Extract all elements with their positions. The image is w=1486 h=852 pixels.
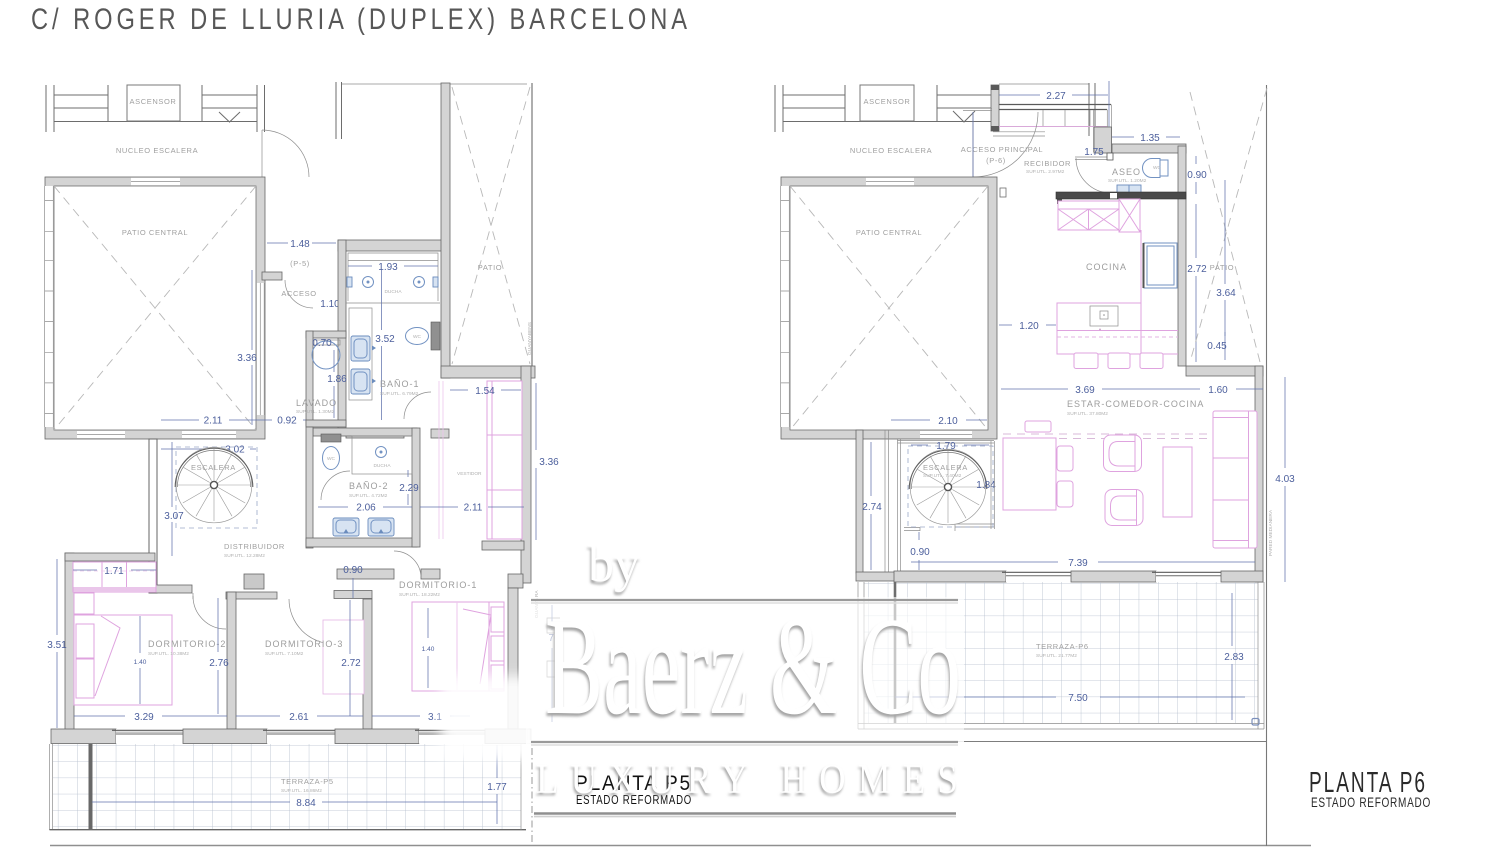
svg-text:ESTADO REFORMADO: ESTADO REFORMADO — [1311, 794, 1431, 810]
svg-text:3.69: 3.69 — [1075, 385, 1095, 396]
svg-text:PARED MEDIANERA: PARED MEDIANERA — [1268, 509, 1274, 556]
svg-text:SUP.UTL. 4.72M2: SUP.UTL. 4.72M2 — [349, 493, 388, 499]
svg-text:1.20: 1.20 — [1019, 321, 1039, 332]
svg-text:by: by — [588, 536, 640, 593]
svg-text:2.61: 2.61 — [289, 712, 309, 723]
svg-text:1.40: 1.40 — [134, 659, 147, 666]
svg-text:1.10: 1.10 — [320, 299, 340, 310]
svg-text:1.75: 1.75 — [1084, 147, 1104, 158]
svg-text:2.06: 2.06 — [356, 503, 376, 514]
svg-text:SUP.UTL. 16.86M2: SUP.UTL. 16.86M2 — [281, 788, 322, 794]
svg-text:Baerz & Co: Baerz & Co — [545, 589, 961, 744]
svg-text:ASCENSOR: ASCENSOR — [130, 97, 177, 106]
svg-text:PATIO: PATIO — [478, 263, 502, 272]
svg-text:2.83: 2.83 — [1224, 652, 1244, 663]
svg-text:0.45: 0.45 — [1207, 341, 1227, 352]
svg-text:SUP.UTL. 18.22M2: SUP.UTL. 18.22M2 — [399, 592, 440, 598]
svg-text:PATIO CENTRAL: PATIO CENTRAL — [122, 228, 188, 237]
svg-text:(P-5): (P-5) — [290, 259, 310, 268]
svg-text:C/ ROGER DE LLURIA (DUPLEX) B: C/ ROGER DE LLURIA (DUPLEX) BARCELONA — [31, 3, 691, 36]
svg-text:1.60: 1.60 — [1208, 385, 1228, 396]
svg-text:WC: WC — [327, 456, 336, 462]
svg-text:SUP.UTL. 7.40M2: SUP.UTL. 7.40M2 — [923, 473, 962, 479]
svg-text:LUXURY HOMES: LUXURY HOMES — [536, 757, 970, 803]
svg-text:SUP.UTL. 7.10M2: SUP.UTL. 7.10M2 — [265, 651, 304, 657]
svg-text:3.36: 3.36 — [539, 457, 559, 468]
svg-text:ASEO: ASEO — [1112, 167, 1141, 177]
svg-text:ESCALERA: ESCALERA — [191, 463, 236, 472]
svg-text:1.77: 1.77 — [487, 782, 507, 793]
svg-text:2.76: 2.76 — [209, 658, 229, 669]
svg-text:ESTAR-COMEDOR-COCINA: ESTAR-COMEDOR-COCINA — [1067, 399, 1204, 409]
svg-text:1.84: 1.84 — [976, 480, 996, 491]
svg-text:2.27: 2.27 — [1046, 91, 1066, 102]
svg-text:8.84: 8.84 — [296, 798, 316, 809]
svg-text:1.35: 1.35 — [1140, 133, 1160, 144]
svg-text:DUCHA: DUCHA — [373, 463, 391, 469]
svg-text:2.72: 2.72 — [1187, 264, 1207, 275]
svg-text:0.90: 0.90 — [343, 565, 363, 576]
svg-text:SUP.UTL. 37.80M2: SUP.UTL. 37.80M2 — [1067, 411, 1108, 417]
svg-text:4.03: 4.03 — [1275, 474, 1295, 485]
svg-text:GUANYABENS: GUANYABENS — [527, 322, 533, 355]
svg-text:LAVADO: LAVADO — [296, 398, 337, 408]
svg-text:1.71: 1.71 — [104, 566, 124, 577]
svg-text:WC: WC — [413, 334, 422, 340]
svg-text:2.29: 2.29 — [399, 483, 419, 494]
svg-text:3.51: 3.51 — [47, 640, 67, 651]
svg-text:BAÑO-1: BAÑO-1 — [380, 379, 420, 389]
svg-text:BAÑO-2: BAÑO-2 — [349, 481, 389, 491]
svg-text:DORMITORIO-2: DORMITORIO-2 — [148, 639, 226, 649]
svg-text:SUP.UTL. 12.28M2: SUP.UTL. 12.28M2 — [224, 553, 265, 559]
svg-text:1.48: 1.48 — [290, 239, 310, 250]
svg-text:2.11: 2.11 — [464, 503, 483, 514]
svg-text:SUP.UTL. 1.30M2: SUP.UTL. 1.30M2 — [296, 409, 335, 415]
svg-text:0.90: 0.90 — [1187, 170, 1207, 181]
svg-text:(P-6): (P-6) — [986, 156, 1006, 165]
svg-text:0.90: 0.90 — [910, 547, 930, 558]
svg-text:DORMITORIO-3: DORMITORIO-3 — [265, 639, 343, 649]
svg-text:3.64: 3.64 — [1216, 288, 1236, 299]
svg-text:SUP.UTL. 2.97M2: SUP.UTL. 2.97M2 — [1026, 169, 1065, 175]
svg-text:7.50: 7.50 — [1068, 693, 1088, 704]
svg-text:3.52: 3.52 — [375, 334, 395, 345]
svg-text:0.92: 0.92 — [277, 416, 297, 427]
svg-text:NUCLEO ESCALERA: NUCLEO ESCALERA — [116, 146, 198, 155]
svg-text:PATIO: PATIO — [1210, 263, 1234, 272]
svg-text:WC: WC — [1153, 165, 1162, 171]
svg-text:2.10: 2.10 — [938, 416, 958, 427]
svg-text:DISTRIBUIDOR: DISTRIBUIDOR — [224, 542, 285, 551]
svg-text:ACCESO: ACCESO — [281, 289, 316, 298]
svg-text:DUCHA: DUCHA — [384, 289, 402, 295]
svg-text:PATIO CENTRAL: PATIO CENTRAL — [856, 228, 922, 237]
svg-text:RECIBIDOR: RECIBIDOR — [1024, 159, 1071, 168]
svg-text:3.1: 3.1 — [428, 712, 442, 723]
svg-text:2.11: 2.11 — [204, 416, 223, 427]
svg-text:NUCLEO ESCALERA: NUCLEO ESCALERA — [850, 146, 932, 155]
svg-text:SUP.UTL. 10.38M2: SUP.UTL. 10.38M2 — [148, 651, 189, 657]
svg-text:1.86: 1.86 — [327, 374, 347, 385]
svg-text:TERRAZA-P5: TERRAZA-P5 — [281, 777, 334, 786]
svg-text:3.07: 3.07 — [164, 511, 184, 522]
svg-text:SUP.UTL. 1.20M2: SUP.UTL. 1.20M2 — [1108, 178, 1147, 184]
svg-text:COCINA: COCINA — [1086, 262, 1127, 272]
svg-text:2.72: 2.72 — [341, 658, 361, 669]
svg-text:2.74: 2.74 — [862, 502, 882, 513]
svg-text:SUP.UTL. 6.79M2: SUP.UTL. 6.79M2 — [380, 391, 419, 397]
svg-text:ESCALERA: ESCALERA — [923, 463, 968, 472]
svg-text:DORMITORIO-1: DORMITORIO-1 — [399, 580, 477, 590]
svg-text:7.39: 7.39 — [1068, 558, 1088, 569]
svg-text:VESTIDOR: VESTIDOR — [457, 471, 482, 477]
svg-text:1.54: 1.54 — [475, 386, 495, 397]
svg-text:1.40: 1.40 — [422, 646, 435, 653]
svg-text:3.29: 3.29 — [134, 712, 154, 723]
svg-text:0.70: 0.70 — [312, 338, 332, 349]
svg-text:SUP.UTL. 21.77M2: SUP.UTL. 21.77M2 — [1036, 653, 1077, 659]
svg-text:TERRAZA-P6: TERRAZA-P6 — [1036, 642, 1089, 651]
svg-text:3.36: 3.36 — [237, 353, 257, 364]
svg-text:ASCENSOR: ASCENSOR — [864, 97, 911, 106]
